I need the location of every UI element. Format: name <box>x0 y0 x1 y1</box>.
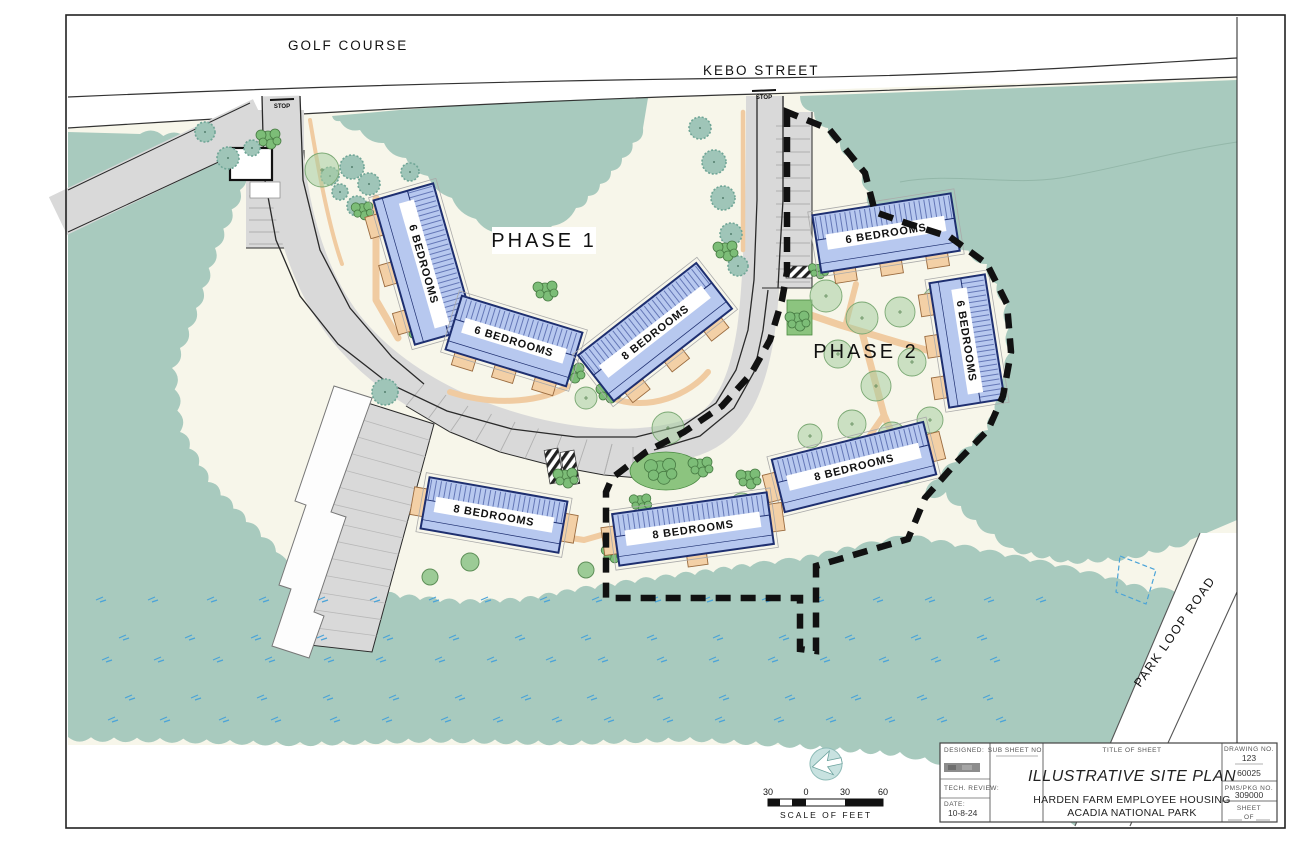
tech-review-label: TECH. REVIEW: <box>944 785 999 792</box>
conifer-tree-icon <box>702 150 726 174</box>
shrub <box>730 249 738 257</box>
shrub <box>354 210 361 217</box>
stop-marking-text: STOP <box>274 104 290 110</box>
golf-course-label: GOLF COURSE <box>288 38 408 53</box>
shrub <box>691 466 699 474</box>
shrub <box>259 138 267 146</box>
shrub <box>536 290 544 298</box>
shrub <box>811 270 817 276</box>
title-block: DESIGNED: TECH. REVIEW: DATE: 10-8-24 SU… <box>940 743 1277 822</box>
tree-center <box>409 171 411 173</box>
title-of-sheet-label: TITLE OF SHEET <box>1102 747 1161 754</box>
shrub <box>570 476 578 484</box>
deciduous-tree-icon <box>810 280 842 312</box>
site-plan-drawing: 6 BEDROOMS6 BEDROOMS8 BEDROOMS6 BEDROOMS… <box>0 0 1300 841</box>
shrub <box>273 137 281 145</box>
redaction-texture <box>962 765 972 770</box>
tree-center <box>339 191 341 193</box>
small-tree-icon <box>461 553 479 571</box>
small-tree-icon <box>422 569 438 585</box>
sub-sheet-label: SUB SHEET NO. <box>988 747 1045 754</box>
tree-canopy <box>578 562 594 578</box>
deciduous-tree-icon <box>305 153 339 187</box>
shrub <box>648 470 658 480</box>
scale-tick: 30 <box>840 787 850 797</box>
project-name-line1: HARDEN FARM EMPLOYEE HOUSING <box>1033 794 1230 806</box>
sheet-title: ILLUSTRATIVE SITE PLAN <box>1028 768 1236 785</box>
shrub <box>716 250 724 258</box>
conifer-tree-icon <box>689 117 711 139</box>
conifer-tree-icon <box>401 163 419 181</box>
tree-center <box>713 161 715 163</box>
deciduous-tree-icon <box>838 410 866 438</box>
scale-tick: 0 <box>803 787 808 797</box>
conifer-tree-icon <box>195 122 215 142</box>
tree-center <box>730 233 732 235</box>
tree-center <box>368 183 370 185</box>
conifer-tree-icon <box>217 147 239 169</box>
deciduous-tree-icon <box>575 387 597 409</box>
scale-tick: 30 <box>763 787 773 797</box>
project-name-line2: ACADIA NATIONAL PARK <box>1067 807 1197 819</box>
designed-label: DESIGNED: <box>944 747 984 754</box>
shrub <box>632 502 639 509</box>
conifer-tree-icon <box>711 186 735 210</box>
drawing-no-label: DRAWING NO. <box>1224 746 1274 753</box>
project-no-value: 60025 <box>1237 768 1261 778</box>
scale-bar: 30 0 30 60 SCALE OF FEET <box>763 787 888 820</box>
tree-center <box>722 197 724 199</box>
conifer-tree-icon <box>372 379 398 405</box>
phase-2-label: PHASE 2 <box>813 341 918 363</box>
stop-marking-text: STOP <box>756 95 772 101</box>
tree-center <box>699 127 701 129</box>
phase-1-label: PHASE 1 <box>491 227 596 254</box>
tree-canopy <box>461 553 479 571</box>
shrub <box>739 478 747 486</box>
deciduous-tree-icon <box>861 371 891 401</box>
tree-center <box>384 391 386 393</box>
tree-center <box>351 166 353 168</box>
small-tree-icon <box>578 562 594 578</box>
date-value: 10-8-24 <box>948 808 978 818</box>
drawing-no-value: 123 <box>1242 753 1256 763</box>
shrub <box>705 465 713 473</box>
conifer-tree-icon <box>244 140 260 156</box>
pms-pkg-value: 309000 <box>1235 790 1264 800</box>
shrub <box>802 319 810 327</box>
shrub <box>667 469 677 479</box>
tree-center <box>737 265 739 267</box>
deciduous-tree-icon <box>885 297 915 327</box>
north-arrow-icon <box>807 745 845 783</box>
shrub <box>788 320 796 328</box>
scale-tick: 60 <box>878 787 888 797</box>
sheet-label: SHEET <box>1237 805 1261 812</box>
svg-text:PHASE 1: PHASE 1 <box>491 230 596 252</box>
tree-center <box>227 157 229 159</box>
site-plan-sheet: 6 BEDROOMS6 BEDROOMS8 BEDROOMS6 BEDROOMS… <box>0 0 1300 841</box>
conifer-tree-icon <box>332 184 348 200</box>
conifer-tree-icon <box>358 173 380 195</box>
shrub <box>556 477 564 485</box>
shrub <box>753 477 761 485</box>
tree-center <box>251 147 253 149</box>
date-label: DATE: <box>944 801 965 808</box>
tree-canopy <box>422 569 438 585</box>
redaction-texture <box>948 765 956 770</box>
shrub <box>550 289 558 297</box>
sheet-of-label: OF <box>1244 814 1254 821</box>
deciduous-tree-icon <box>846 302 878 334</box>
deciduous-tree-icon <box>798 424 822 448</box>
tree-center <box>204 131 206 133</box>
scale-caption: SCALE OF FEET <box>780 810 872 820</box>
kebo-street-label: KEBO STREET <box>703 63 820 78</box>
conifer-tree-icon <box>340 155 364 179</box>
shrub <box>577 371 585 379</box>
